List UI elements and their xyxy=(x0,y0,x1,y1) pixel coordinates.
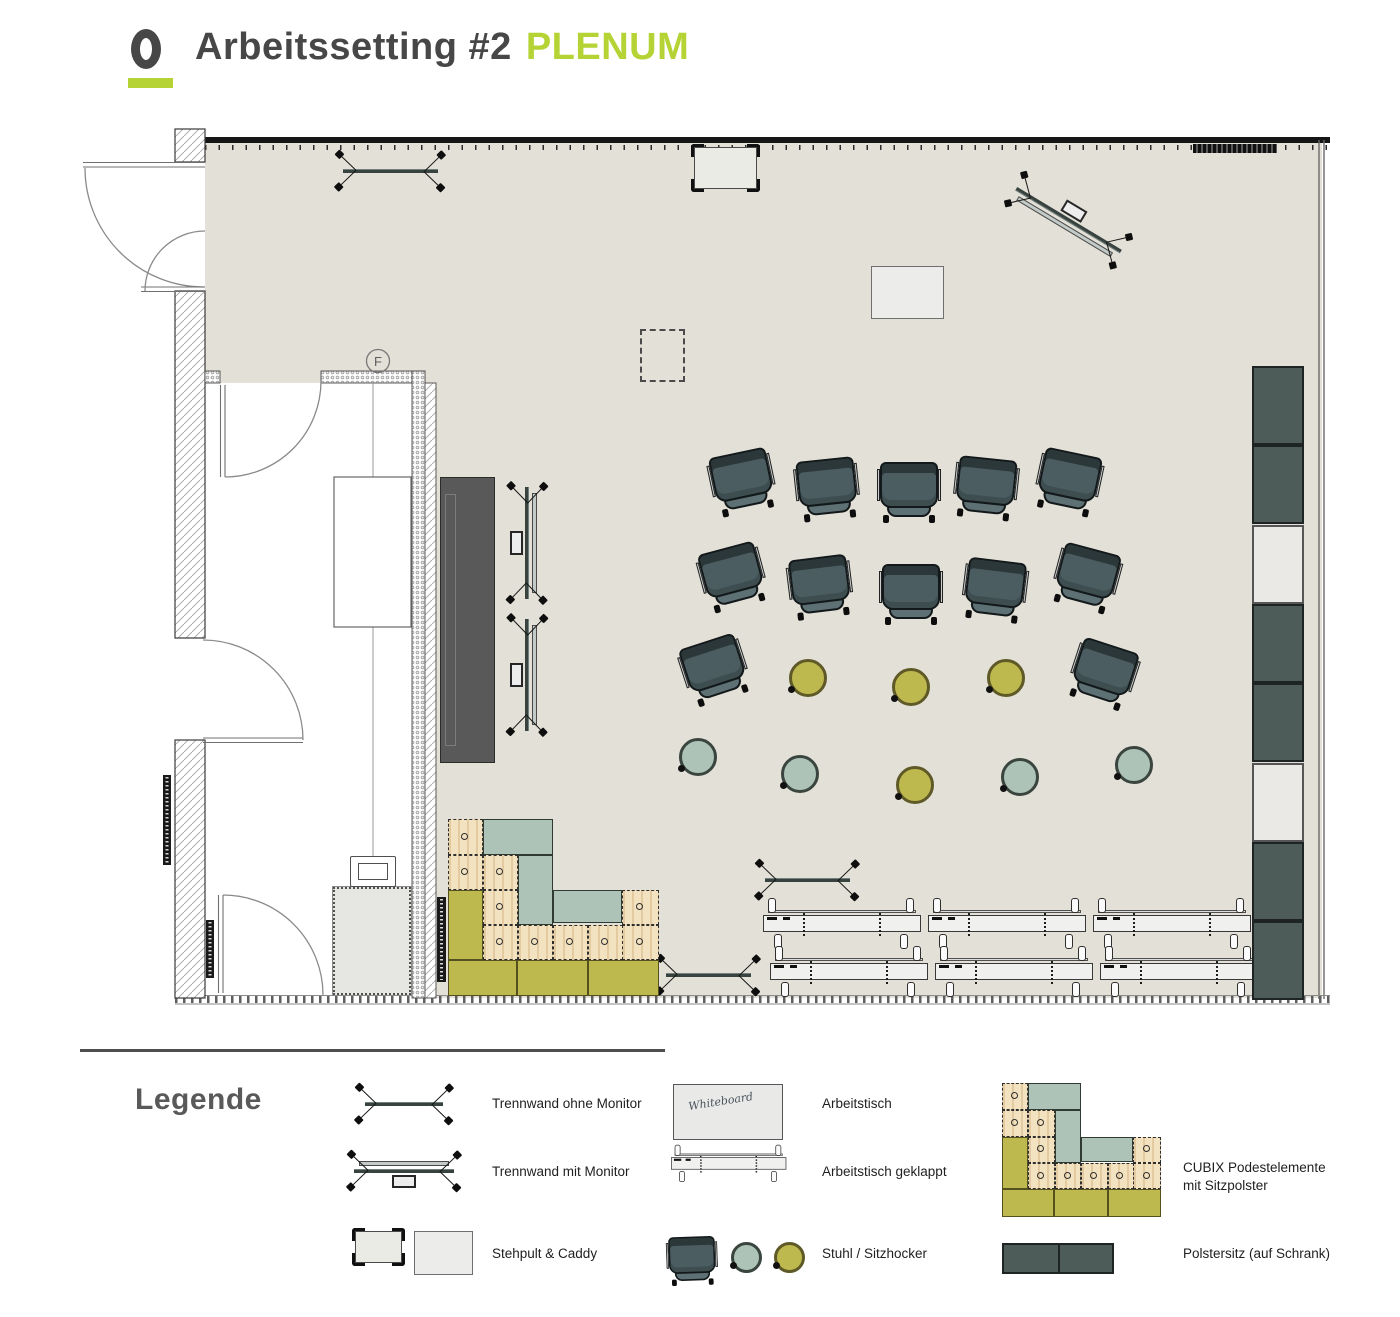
legend-divider xyxy=(80,1049,665,1052)
cubix-tile-wood xyxy=(1133,1163,1161,1189)
polstersitz-icon xyxy=(1002,1243,1114,1274)
cubix-tile-wood xyxy=(1055,1163,1081,1189)
cubix-tile-teal xyxy=(1081,1137,1133,1162)
cubix-tile-olive xyxy=(1002,1189,1054,1216)
cubix-tile-wood xyxy=(1133,1137,1161,1163)
partition-without-monitor xyxy=(365,1083,443,1123)
cubix-tile-wood xyxy=(1028,1163,1054,1189)
legend-icon-arbeitstisch: Whiteboard xyxy=(673,1084,783,1140)
cubix-tile-wood xyxy=(1002,1110,1028,1136)
chair xyxy=(666,1235,717,1283)
brand-logo-icon xyxy=(131,29,161,69)
floorplan-page: Arbeitssetting #2PLENUM xyxy=(0,0,1400,1317)
cubix-tile-wood xyxy=(1002,1083,1028,1110)
partition-with-monitor xyxy=(354,1150,454,1190)
cubix-tile-wood xyxy=(1108,1163,1134,1189)
title-text: Arbeitssetting #2 xyxy=(195,26,512,68)
cubix-tile-olive xyxy=(1108,1189,1162,1216)
cubix-tile-olive xyxy=(1054,1189,1108,1216)
cubix-tile-olive xyxy=(1002,1137,1028,1190)
partition-panel xyxy=(359,1161,449,1166)
page-title: Arbeitssetting #2PLENUM xyxy=(195,26,689,69)
legend-caddy xyxy=(414,1231,473,1275)
legend-label-arbeitstisch-geklappt: Arbeitstisch geklappt xyxy=(822,1164,947,1179)
legend-heading: Legende xyxy=(135,1083,262,1117)
cubix-tile-wood xyxy=(1081,1163,1107,1189)
title-highlight: PLENUM xyxy=(526,26,689,68)
folded-table xyxy=(671,1147,786,1180)
legend-label-trennwand-ohne-monitor: Trennwand ohne Monitor xyxy=(492,1096,642,1111)
cubix-tile-teal xyxy=(1028,1083,1081,1110)
stehpult xyxy=(355,1231,402,1263)
legend-label-stuhl-sitzhocker: Stuhl / Sitzhocker xyxy=(822,1246,927,1261)
stool-olive xyxy=(774,1242,805,1273)
legend-label-cubix: CUBIX Podestelemente mit Sitzpolster xyxy=(1183,1159,1343,1195)
cubix-tile-teal xyxy=(1055,1110,1081,1163)
legend-label-trennwand-mit-monitor: Trennwand mit Monitor xyxy=(492,1164,630,1179)
legend-label-stehpult-caddy: Stehpult & Caddy xyxy=(492,1246,597,1261)
stool-teal xyxy=(731,1242,762,1273)
brand-logo-underline xyxy=(128,78,173,88)
side-room-floor xyxy=(205,383,412,998)
whiteboard-note: Whiteboard xyxy=(687,1090,754,1113)
legend-label-arbeitstisch: Arbeitstisch xyxy=(822,1096,892,1111)
cubix-tile-wood xyxy=(1028,1110,1054,1136)
legend-label-polstersitz: Polstersitz (auf Schrank) xyxy=(1183,1246,1330,1261)
partition-monitor-icon xyxy=(392,1175,416,1188)
cubix-tile-wood xyxy=(1028,1137,1054,1163)
